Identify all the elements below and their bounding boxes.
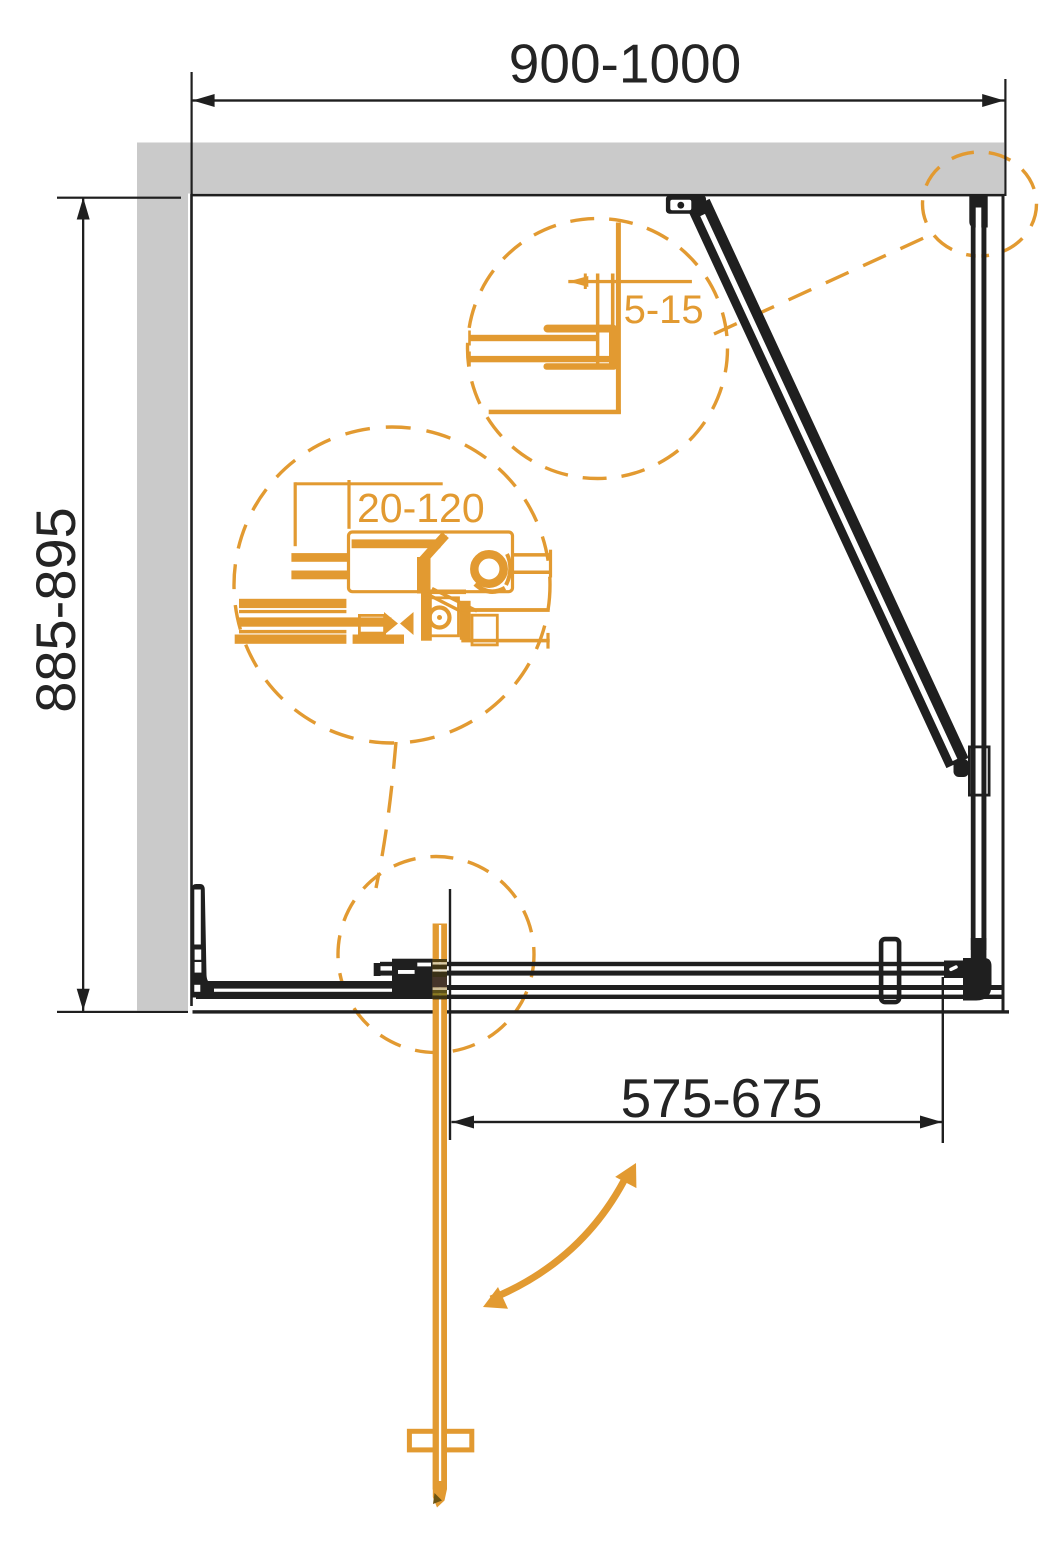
svg-text:575-675: 575-675 (621, 1067, 823, 1129)
svg-text:20-120: 20-120 (357, 485, 485, 531)
svg-text:5-15: 5-15 (624, 288, 704, 332)
svg-text:900-1000: 900-1000 (509, 33, 741, 95)
svg-text:885-895: 885-895 (24, 507, 87, 713)
